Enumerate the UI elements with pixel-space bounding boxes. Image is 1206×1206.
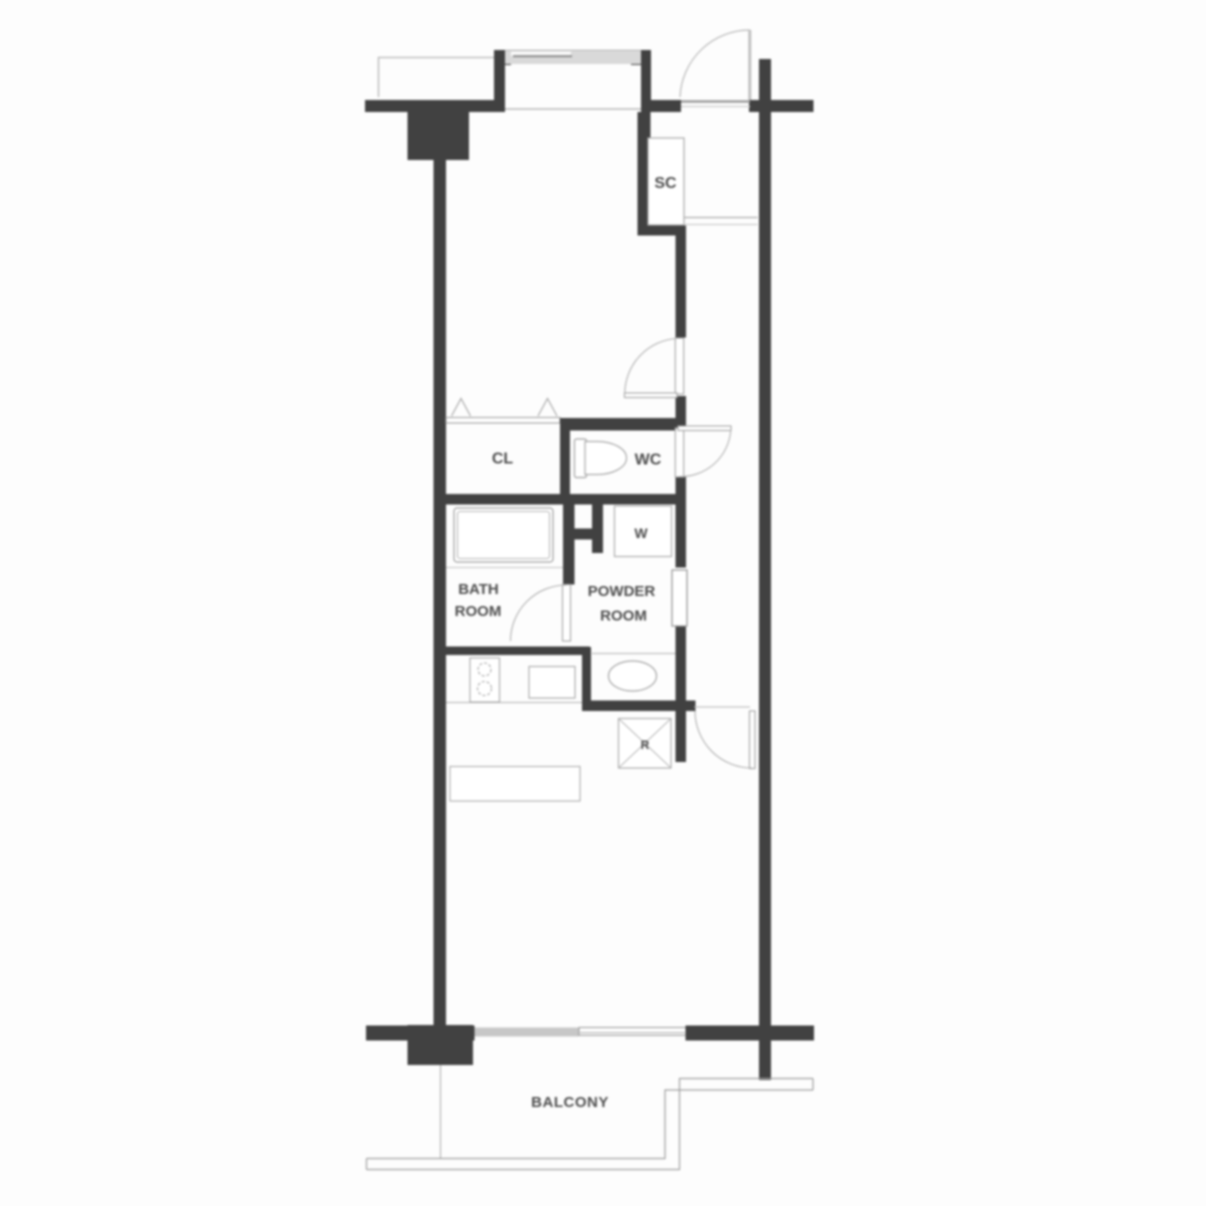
svg-text:POWDER: POWDER <box>588 583 656 600</box>
svg-text:ROOM: ROOM <box>600 608 647 625</box>
svg-text:WC: WC <box>635 452 662 469</box>
svg-text:BALCONY: BALCONY <box>531 1094 609 1111</box>
svg-text:CL: CL <box>492 451 514 468</box>
svg-text:BATH: BATH <box>458 581 499 598</box>
svg-text:R: R <box>641 738 650 752</box>
svg-text:ROOM: ROOM <box>455 603 502 620</box>
svg-text:W: W <box>634 525 648 541</box>
svg-text:SC: SC <box>654 175 677 192</box>
